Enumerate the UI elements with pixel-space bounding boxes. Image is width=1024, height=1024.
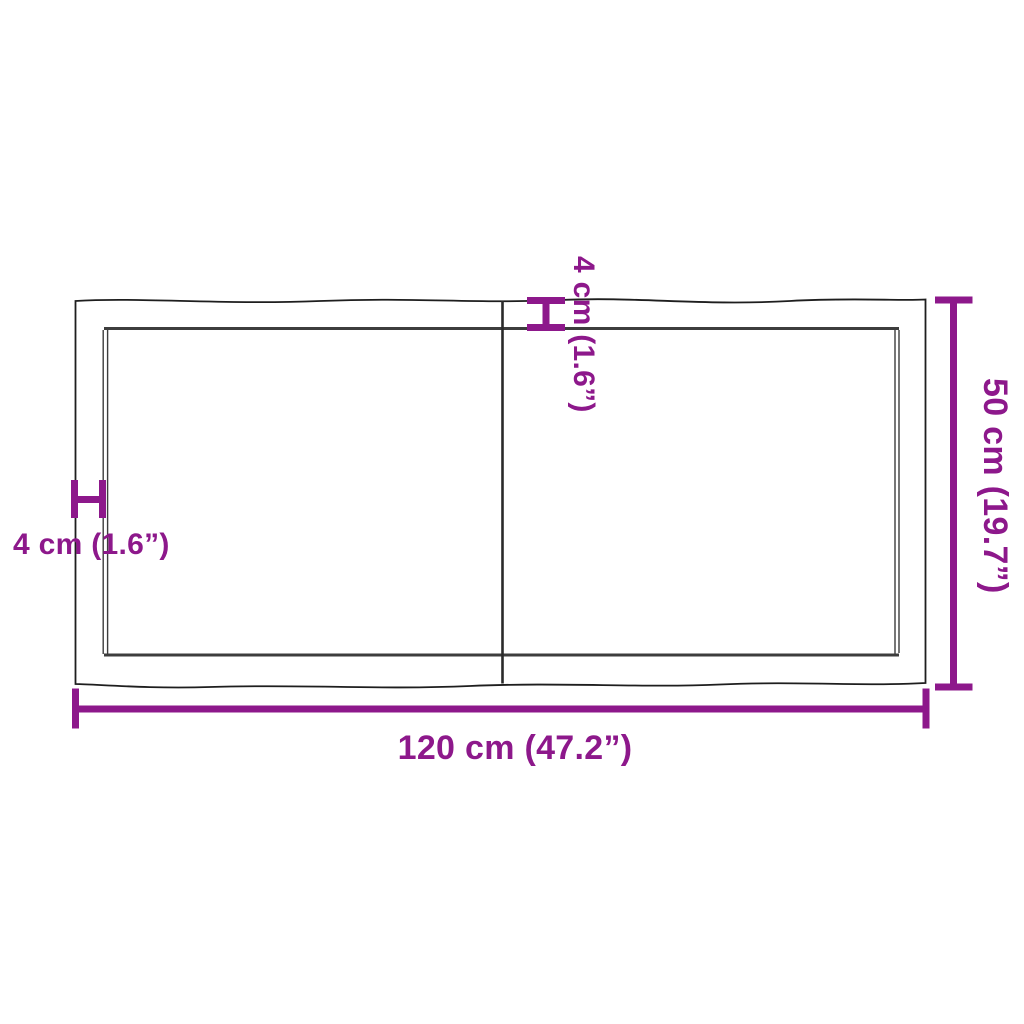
height-dimension-label: 50 cm (19.7”) (975, 378, 1014, 594)
thickness-marker-left (72, 480, 106, 518)
tabletop-outer-outline (76, 299, 926, 687)
thickness-marker-top (527, 298, 565, 331)
tabletop-inner-edge-right (895, 330, 899, 654)
top-thickness-dimension-label: 4 cm (1.6”) (566, 256, 600, 413)
width-dimension-line (76, 689, 927, 729)
height-dimension-line (935, 300, 973, 687)
width-dimension-label: 120 cm (47.2”) (398, 729, 633, 768)
left-thickness-dimension-label: 4 cm (1.6”) (13, 528, 170, 562)
tabletop-drawing (0, 0, 1024, 1024)
product-dimension-diagram: 120 cm (47.2”) 50 cm (19.7”) 4 cm (1.6”)… (0, 0, 1024, 1024)
